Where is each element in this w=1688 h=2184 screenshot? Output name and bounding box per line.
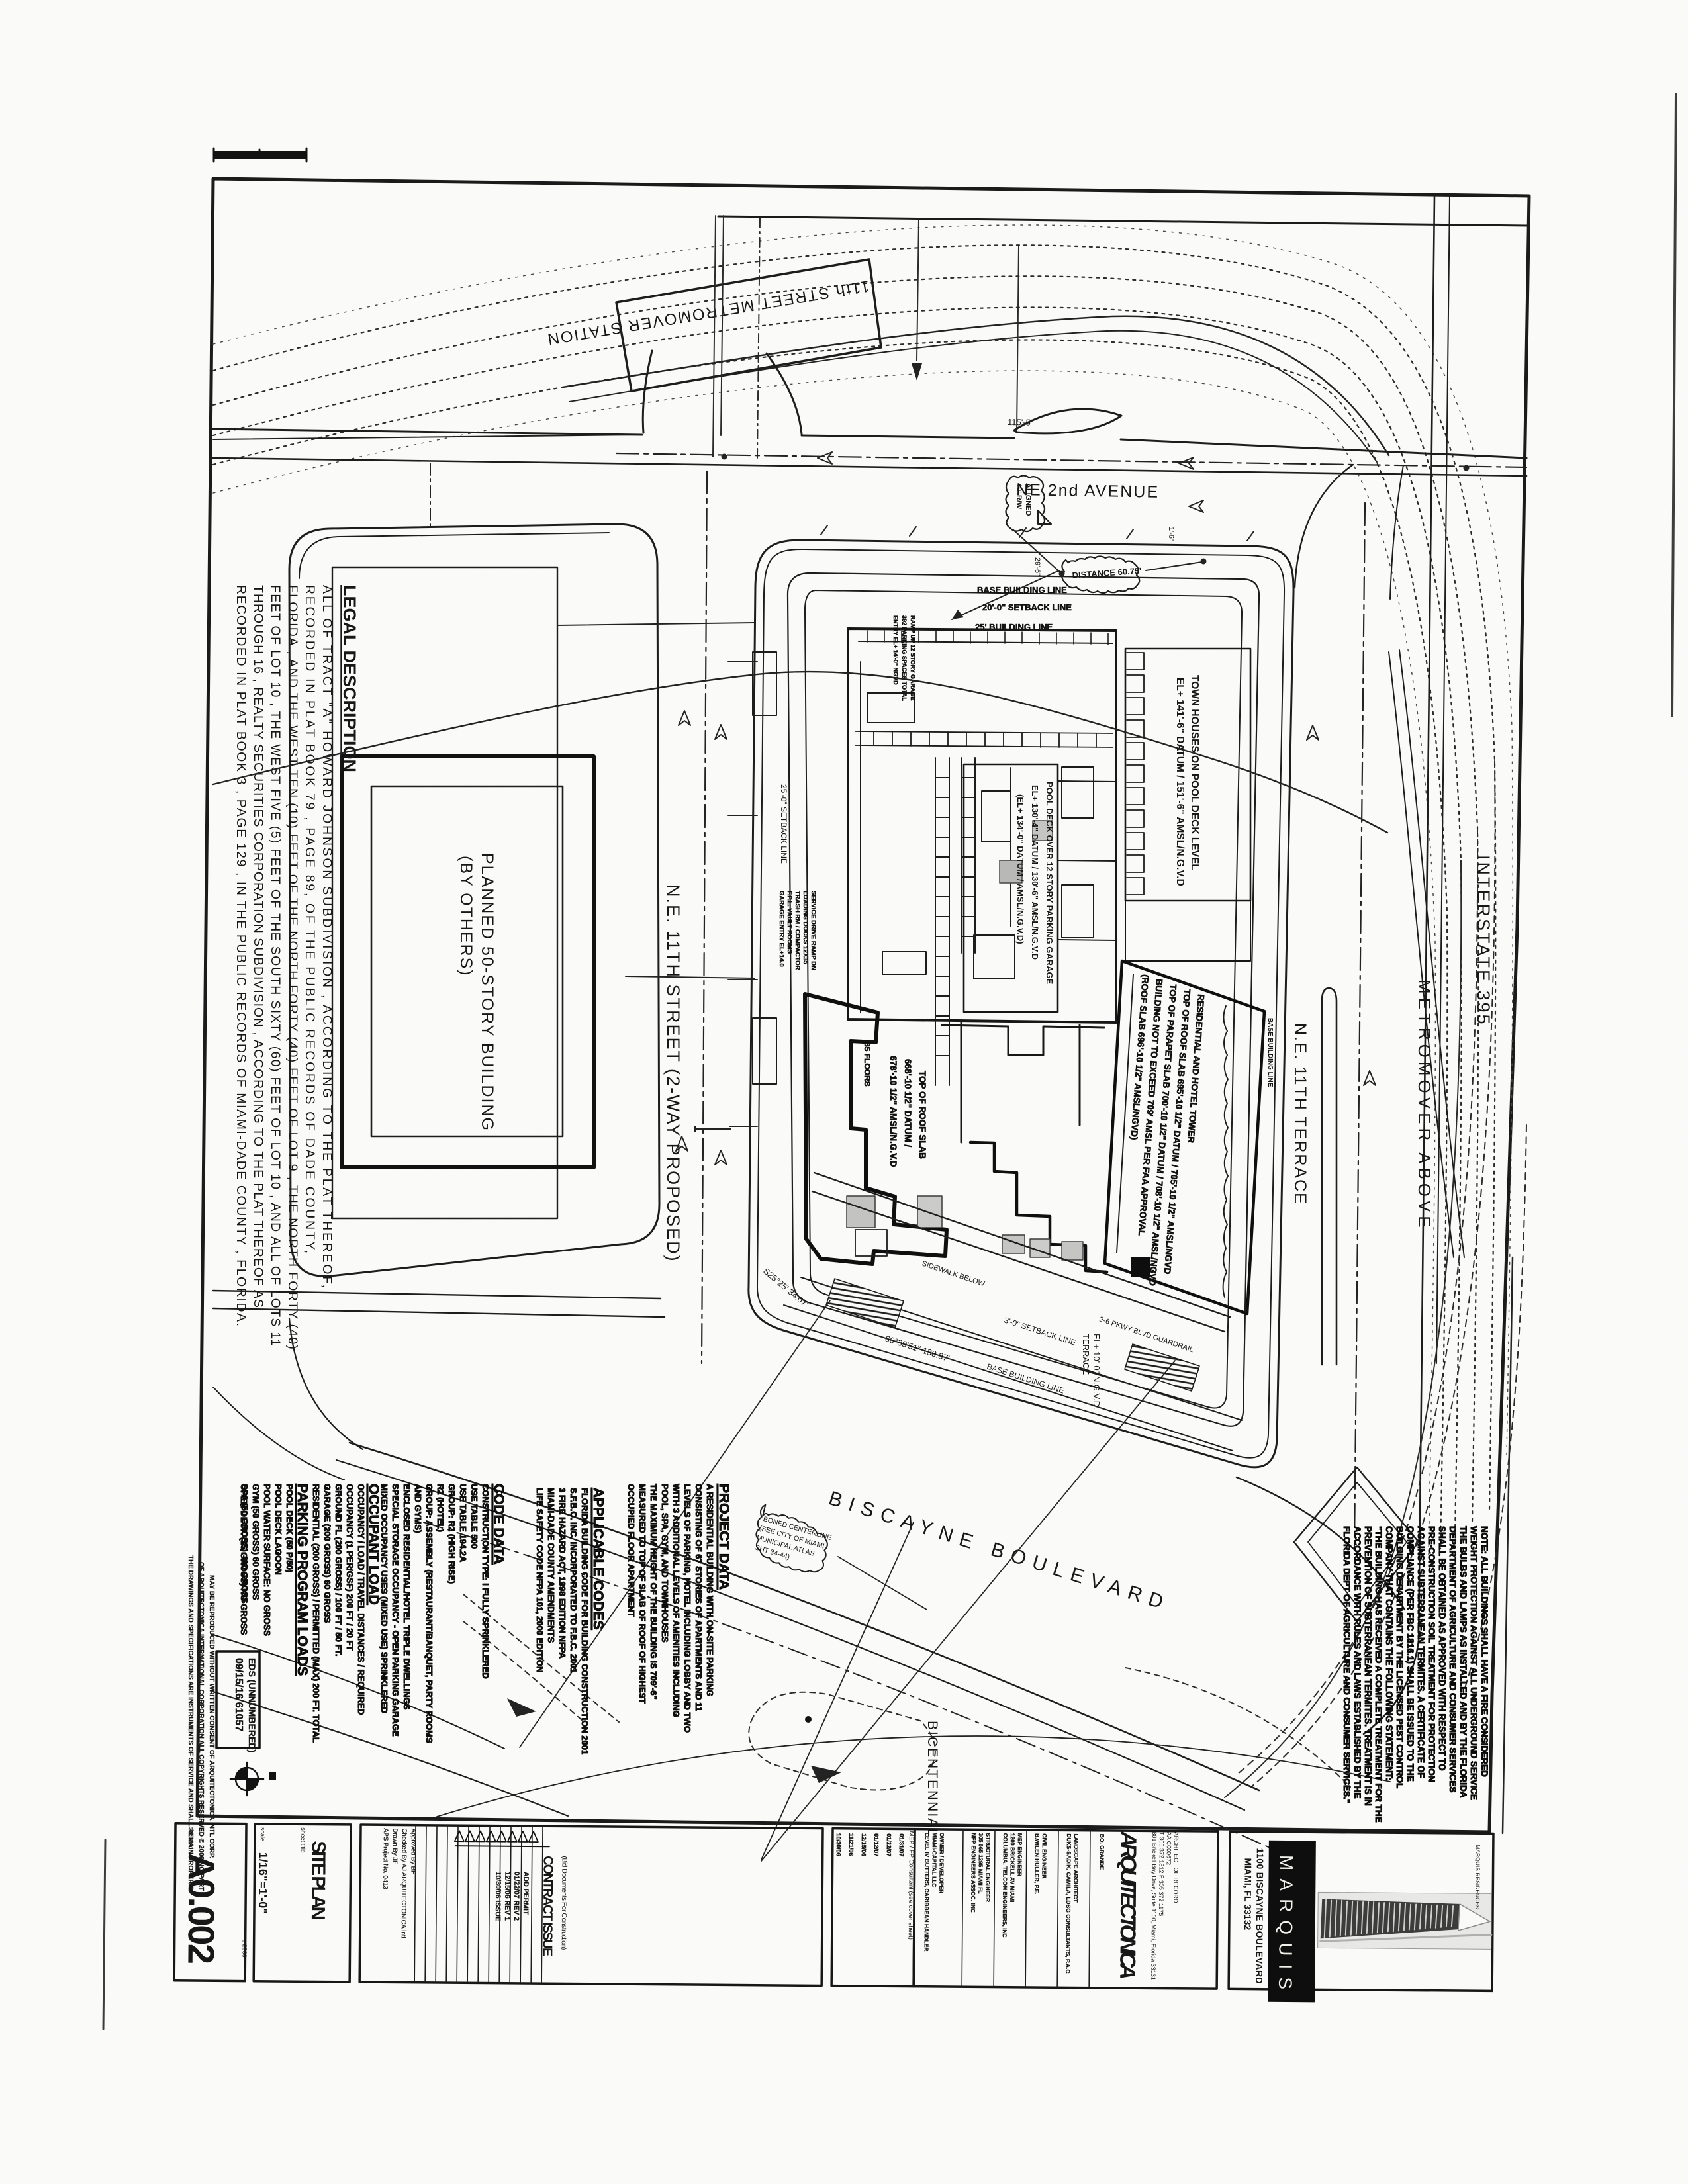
svg-text:FLORIDA DEPT OF AGRICULTURE AN: FLORIDA DEPT OF AGRICULTURE AND CONSUMER… [1342,1526,1352,1803]
svg-text:METROMOVER ABOVE: METROMOVER ABOVE [1415,979,1434,1232]
svg-text:Drawn By JF: Drawn By JF [391,1828,399,1864]
svg-text:LIFE SAFETY CODE NFPA 101, 200: LIFE SAFETY CODE NFPA 101, 2000 EDITION [535,1488,545,1672]
svg-text:MEP ENGINEER: MEP ENGINEER [1016,1833,1023,1876]
svg-text:STRUCTURAL ENGINEER: STRUCTURAL ENGINEER [984,1833,992,1902]
svg-text:OCCUPANT LOAD: OCCUPANT LOAD [366,1484,381,1605]
svg-text:BASE BUILDING LINE: BASE BUILDING LINE [1266,1018,1274,1087]
svg-text:B.WILEN HULLER, P.E.: B.WILEN HULLER, P.E. [1033,1833,1041,1894]
svg-text:ALIGNED: ALIGNED [1024,483,1032,516]
svg-text:F.P.L. VAULT ROOMS: F.P.L. VAULT ROOMS [786,891,793,954]
svg-text:GROUND FL (200 GROSS) / 100 FT: GROUND FL (200 GROSS) / 100 FT / 50 FT. [334,1484,344,1657]
svg-text:801 Brickell Bay Drive, Suite: 801 Brickell Bay Drive, Suite 1100, Miam… [1150,1831,1158,1980]
svg-text:(BY OTHERS): (BY OTHERS) [457,856,475,977]
svg-text:20'-0" SETBACK LINE: 20'-0" SETBACK LINE [982,602,1072,612]
svg-text:MIAMI-DADE COUNTY AMENDMENTS: MIAMI-DADE COUNTY AMENDMENTS [546,1488,556,1643]
svg-text:NOTE: ALL BUILDINGS SHALL HAVE: NOTE: ALL BUILDINGS SHALL HAVE A FIRE CO… [1479,1526,1489,1777]
svg-text:1200 BRICKELL AV MIAMI: 1200 BRICKELL AV MIAMI [1009,1833,1016,1903]
svg-text:ARQUITECTONICA: ARQUITECTONICA [1115,1831,1141,1979]
svg-text:Checked By AJ ARQUITECTONI: Checked By AJ ARQUITECTONICA Intl [400,1828,408,1938]
svg-text:RESIDENTIAL (200 GROSS) / PERM: RESIDENTIAL (200 GROSS) / PERMITTED (MAX… [311,1484,321,1743]
svg-text:PRE-CONSTRUCTION SOIL TREATMEN: PRE-CONSTRUCTION SOIL TREATMENT FOR PROT… [1427,1526,1436,1782]
svg-text:NE 2nd AVENUE: NE 2nd AVENUE [1016,480,1159,502]
svg-text:RECORDED IN PLAT BOOK 3 , PAGE: RECORDED IN PLAT BOOK 3 , PAGE 129 , IN … [234,585,248,1326]
svg-text:ENCLOSED RESIDENTIAL/HOTEL TRI: ENCLOSED RESIDENTIAL/HOTEL TRIPLE DWELLI… [402,1484,412,1710]
svg-text:COLUMBIA. TELCOM ENGINEERS, IN: COLUMBIA. TELCOM ENGINEERS, INC [1002,1833,1009,1938]
svg-text:c 2006: c 2006 [241,1940,248,1958]
svg-text:OF ARQUITECTONICA INTERNATIONA: OF ARQUITECTONICA INTERNATIONAL CORPORAT… [197,1562,205,1891]
svg-text:BASE BUILDING LINE: BASE BUILDING LINE [977,585,1067,595]
svg-text:scale: scale [259,1827,266,1841]
svg-text:WITH 3 ADDITIONAL LEVELS OF AM: WITH 3 ADDITIONAL LEVELS OF AMENITIES IN… [671,1484,681,1717]
svg-text:GARAGE ENTRY EL+14.0: GARAGE ENTRY EL+14.0 [778,891,785,967]
svg-text:FLORIDA , AND THE WEST TEN (10: FLORIDA , AND THE WEST TEN (10) FEET OF … [285,585,300,1349]
svg-text:(EL+ 134'-0" DATUM / AMSL/N.G.: (EL+ 134'-0" DATUM / AMSL/N.G.V.D) [1015,794,1025,944]
svg-text:BICENTENNIAL: BICENTENNIAL [925,1721,940,1838]
svg-text:AGAINST SUBTERRANEAN TERMITES.: AGAINST SUBTERRANEAN TERMITES. A CERTIFI… [1416,1526,1426,1778]
svg-text:"THE BUILDING HAS RECEIVED A C: "THE BUILDING HAS RECEIVED A COMPLETE TR… [1374,1526,1383,1823]
svg-text:S.F.B.C. INC. INCORPORATED TO: S.F.B.C. INC. INCORPORATED TO F.B.C. 200… [569,1488,579,1673]
svg-text:FEET OF LOT 10 , THE WEST FIVE: FEET OF LOT 10 , THE WEST FIVE (5) FEET … [268,585,283,1346]
svg-text:WEIGHT PROTECTION AGAINST ALL: WEIGHT PROTECTION AGAINST ALL UNDERGROUN… [1469,1526,1479,1800]
svg-text:115'-5": 115'-5" [1008,417,1034,428]
svg-text:ACCORDANCE WITH RULES AND LAWS: ACCORDANCE WITH RULES AND LAWS ESTABLISH… [1352,1526,1362,1799]
svg-text:ENTRY EL+ 14'-0" NGVD: ENTRY EL+ 14'-0" NGVD [892,615,899,685]
svg-text:ARCHITECT OF RECORD: ARCHITECT OF RECORD [1172,1832,1180,1903]
svg-text:COMPANY THAT CONTAINS THE FOLL: COMPANY THAT CONTAINS THE FOLLOWING STAT… [1384,1526,1394,1780]
svg-text:3 FIRE HAZARD ACT, 1998 EDITIO: 3 FIRE HAZARD ACT, 1998 EDITION NFPA [557,1488,567,1659]
svg-text:11/21/06: 11/21/06 [848,1833,855,1856]
svg-text:APPLICABLE CODES: APPLICABLE CODES [590,1488,606,1630]
svg-text:PLANNED 50-STORY BUILDING: PLANNED 50-STORY BUILDING [478,853,496,1132]
svg-text:RAMP UP 12 STORY GARAGE: RAMP UP 12 STORY GARAGE [910,615,916,701]
svg-text:BISCAYNE BOULEVARD: BISCAYNE BOULEVARD [826,1487,1173,1615]
svg-text:MEASURED TO TOP OF SLAB OF ROO: MEASURED TO TOP OF SLAB OF ROOF OF HIGHE… [637,1484,647,1704]
svg-text:N.E. 11TH STREET (2-WAY PROPOS: N.E. 11TH STREET (2-WAY PROPOSED) [663,884,683,1263]
svg-text:EL+ 10'-0" N.G.V.D.: EL+ 10'-0" N.G.V.D. [1092,1334,1102,1410]
svg-text:CONSTRUCTION TYPE: I FULLY SPR: CONSTRUCTION TYPE: I FULLY SPRINKLERED [481,1484,491,1679]
svg-text:USE TABLE 500: USE TABLE 500 [469,1484,479,1549]
svg-text:sheet no: sheet no [188,1827,195,1850]
svg-text:EDS (UNNUMBERED): EDS (UNNUMBERED) [247,1658,258,1752]
svg-text:POOL WATER SURFACE: NO GROSS: POOL WATER SURFACE: NO GROSS [262,1484,272,1636]
svg-text:SIDEWALK BELOW: SIDEWALK BELOW [921,1259,986,1288]
svg-text:GYM (50 GROSS) 60 GROSS: GYM (50 GROSS) 60 GROSS [251,1484,261,1600]
svg-text:10/30/06: 10/30/06 [835,1833,842,1856]
svg-text:DUKS-SADIK, CAMILA, LDSG CONSU: DUKS-SADIK, CAMILA, LDSG CONSULTANTS, P.… [1064,1833,1072,1973]
svg-text:LOADING DOCKS 12X35: LOADING DOCKS 12X35 [802,891,809,965]
svg-text:MARQUIS RESIDENCES: MARQUIS RESIDENCES [1474,1844,1481,1909]
svg-text:MIAMI, FL 33132: MIAMI, FL 33132 [1243,1858,1254,1930]
svg-text:PARKING PROGRAM LOADS: PARKING PROGRAM LOADS [295,1484,310,1676]
svg-text:THROUGH 16 , REALTY SECURITIES: THROUGH 16 , REALTY SECURITIES CORPORATI… [251,585,265,1308]
svg-text:09/15/16 61057: 09/15/16 61057 [233,1658,244,1731]
svg-text:01/12/07: 01/12/07 [873,1833,880,1856]
svg-text:01/22/07 REV 2: 01/22/07 REV 2 [512,1872,521,1921]
svg-text:RECORDED IN PLAT BOOK 79 , PAG: RECORDED IN PLAT BOOK 79 , PAGE 89, OF T… [303,585,317,1253]
svg-text:POOL, SPA, GYM, AND TOWNHOUSES: POOL, SPA, GYM, AND TOWNHOUSES [660,1484,670,1643]
svg-text:OCCUPIED FLOOR APARTMENT: OCCUPIED FLOOR APARTMENT [626,1484,636,1617]
svg-text:R2 (HOTEL): R2 (HOTEL) [436,1484,445,1532]
svg-text:LEVEL IV BUTTERS, CARIBBEAN HA: LEVEL IV BUTTERS, CARIBBEAN HANDLER [923,1833,931,1952]
svg-text:29'-6": 29'-6" [1033,557,1041,576]
svg-text:DEPARTMENT OF AGRICULTURE AND: DEPARTMENT OF AGRICULTURE AND CONSUMER S… [1448,1526,1458,1793]
svg-text:LEGAL DESCRIPTION: LEGAL DESCRIPTION [340,585,359,772]
svg-text:PROJECT DATA: PROJECT DATA [716,1484,731,1590]
svg-text:678'-10 1/2" AMSL/N.G.V.D: 678'-10 1/2" AMSL/N.G.V.D [888,1056,898,1167]
svg-text:CONTRACT ISSUE: CONTRACT ISSUE [539,1856,555,1956]
svg-text:EL+ 130'-4" DATUM / 130'-6" AM: EL+ 130'-4" DATUM / 130'-6" AMSL/N.G.V.D [1030,785,1040,960]
svg-text:T 305 372 1812 F 305 372 1175: T 305 372 1812 F 305 372 1175 [1158,1831,1165,1916]
svg-text:SITE PLAN: SITE PLAN [307,1841,329,1920]
svg-text:THE BULBS AND LAMPS AS INSTALL: THE BULBS AND LAMPS AS INSTALLED AND BY … [1458,1526,1468,1798]
svg-text:MAY BE REPRODUCED WITHOUT WRIT: MAY BE REPRODUCED WITHOUT WRITTEN CONSEN… [208,1575,215,1858]
svg-text:01/31/07: 01/31/07 [898,1833,905,1856]
svg-text:OPEN DECK (15 GROSS) NO GROSS: OPEN DECK (15 GROSS) NO GROSS [239,1484,249,1635]
svg-text:BO. GRANDE: BO. GRANDE [1099,1834,1105,1870]
svg-text:1'-6": 1'-6" [1167,527,1175,541]
svg-text:FLORIDA BUILDING CODE FOR BUIL: FLORIDA BUILDING CODE FOR BUILDING CONST… [580,1488,590,1754]
svg-text:A RESIDENTIAL BUILDING WITH ON: A RESIDENTIAL BUILDING WITH ON-SITE PARK… [705,1484,715,1696]
svg-text:OCCUPANCY / LOAD / TRAVEL DIST: OCCUPANCY / LOAD / TRAVEL DISTANCES / RE… [356,1484,366,1715]
svg-text:sheet title: sheet title [300,1827,306,1853]
svg-text:ALL OF TRACT "A" HOWARD JOHNSO: ALL OF TRACT "A" HOWARD JOHNSON SUBDIVIS… [320,585,334,1288]
svg-text:60°39'51" 130.87': 60°39'51" 130.87' [884,1334,951,1364]
svg-text:1100 BISCAYNE BOULEVARD: 1100 BISCAYNE BOULEVARD [1254,1848,1266,1984]
svg-text:10/30/06 ISSUE: 10/30/06 ISSUE [494,1872,502,1921]
svg-text:CODE DATA: CODE DATA [491,1484,506,1565]
svg-text:25'-0" SETBACK LINE: 25'-0" SETBACK LINE [779,784,788,864]
svg-text:N.E. 11TH TERRACE: N.E. 11TH TERRACE [1291,1023,1309,1205]
svg-text:APS Project No. 0413: APS Project No. 0413 [381,1828,389,1889]
svg-text:USE TABLE 194.2A: USE TABLE 194.2A [458,1484,468,1563]
svg-text:SERVICE DRIVE RAMP DN: SERVICE DRIVE RAMP DN [810,891,817,970]
svg-text:MIAMI-CAPITAL LLC: MIAMI-CAPITAL LLC [931,1833,938,1888]
svg-text:01/22/07: 01/22/07 [886,1833,892,1856]
svg-text:OWNER / DEVELOPER: OWNER / DEVELOPER [938,1833,945,1893]
svg-text:PREVENTION OF SUBTERRANEAN TER: PREVENTION OF SUBTERRANEAN TERMITES. TRE… [1363,1526,1373,1806]
svg-text:SHALL BE OBTAINED AS APPROVED: SHALL BE OBTAINED AS APPROVED WITH RESPE… [1437,1526,1447,1771]
svg-text:65 FLOORS: 65 FLOORS [863,1042,872,1087]
svg-text:OCCUPANCY (1 PER/GSF) 200 FT /: OCCUPANCY (1 PER/GSF) 200 FT / 20 FT [345,1484,355,1651]
svg-text:A0.002: A0.002 [180,1853,222,1964]
svg-text:NFP ENGINEERS ASSOC. INC: NFP ENGINEERS ASSOC. INC [970,1833,977,1913]
svg-text:POOL DECK OVER 12 STORY PARKIN: POOL DECK OVER 12 STORY PARKING GARAGE [1045,782,1055,985]
svg-text:LEVELS OF PARKING, HOTEL INCLU: LEVELS OF PARKING, HOTEL INCLUDING LOBBY… [682,1484,692,1733]
svg-text:1/16"=1'-0": 1/16"=1'-0" [256,1852,270,1914]
svg-text:COMPLIANCE (PER FBC 1816.1) SH: COMPLIANCE (PER FBC 1816.1) SHALL BE ISS… [1405,1526,1415,1782]
svg-text:GARAGE (200 GROSS) 60 GROSS: GARAGE (200 GROSS) 60 GROSS [322,1484,332,1623]
svg-text:Approved By BF: Approved By BF [409,1829,417,1874]
svg-text:AND GYMS): AND GYMS) [413,1484,423,1533]
svg-text:TOWN HOUSES ON POOL DECK LEVEL: TOWN HOUSES ON POOL DECK LEVEL [1189,675,1200,870]
svg-text:CONSISTING OF 67 STORIES OF AP: CONSISTING OF 67 STORIES OF APARTMENTS A… [694,1484,704,1711]
svg-text:LANDSCAPE ARCHITECT: LANDSCAPE ARCHITECT [1072,1833,1080,1903]
svg-text:S25°25' 34.07': S25°25' 34.07' [761,1266,810,1309]
svg-text:(Bid Documents For Constructio: (Bid Documents For Construction) [560,1856,569,1950]
svg-text:SPECIAL STORAGE OCCUPANCY - OP: SPECIAL STORAGE OCCUPANCY - OPEN PARKING… [391,1484,400,1737]
svg-text:305 665 1295 MIAMI FL: 305 665 1295 MIAMI FL [977,1833,984,1893]
svg-text:3'-0" SETBACK LINE: 3'-0" SETBACK LINE [1003,1316,1077,1347]
svg-text:12/15/06: 12/15/06 [861,1833,867,1856]
svg-text:THE MAXIMUM HEIGHT OF THE BUIL: THE MAXIMUM HEIGHT OF THE BUILDING IS 70… [649,1484,659,1700]
svg-text:BUILDING DEPARTMENT BY THE LIC: BUILDING DEPARTMENT BY THE LICENSED PEST… [1395,1526,1405,1788]
svg-text:12/15/06 REV 1: 12/15/06 REV 1 [503,1872,512,1921]
svg-text:AA C000672: AA C000672 [1166,1832,1172,1866]
svg-text:ADD PERMIT: ADD PERMIT [522,1872,530,1915]
svg-text:POOL DECK LAGOON: POOL DECK LAGOON [273,1484,283,1575]
svg-text:TOP OF ROOF SLAB: TOP OF ROOF SLAB [917,1071,927,1159]
svg-text:392 PARKING SPACES TOTAL: 392 PARKING SPACES TOTAL [901,615,908,701]
svg-text:EL+ 141'-6" DATUM / 151'-6" AM: EL+ 141'-6" DATUM / 151'-6" AMSL/N.G.V.D [1174,678,1186,886]
svg-text:TRASH RM / COMPACTOR: TRASH RM / COMPACTOR [794,891,801,970]
svg-text:CIVIL ENGINEER: CIVIL ENGINEER [1041,1833,1048,1878]
svg-text:668'-10 1/2" DATUM /: 668'-10 1/2" DATUM / [903,1059,913,1147]
svg-text:TERRACE: TERRACE [1081,1334,1091,1375]
svg-text:POOL DECK (50 P/50): POOL DECK (50 P/50) [285,1484,295,1572]
svg-text:GROUP: ASSEMBLY (RESTAURANT/BA: GROUP: ASSEMBLY (RESTAURANT/BANQUET, PAR… [424,1484,434,1743]
svg-text:40' R/W: 40' R/W [1015,483,1023,510]
svg-text:GROUP: R2 (HIGH RISE): GROUP: R2 (HIGH RISE) [447,1484,457,1584]
